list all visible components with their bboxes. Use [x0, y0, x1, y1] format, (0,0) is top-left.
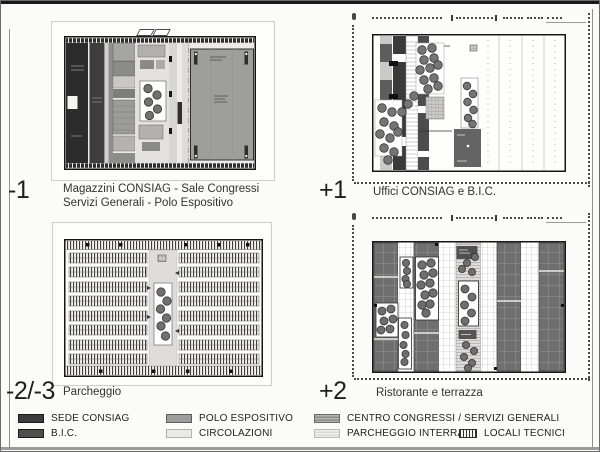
legend-label-circolazioni: CIRCOLAZIONI — [199, 428, 273, 439]
sheet-inner-right-line — [592, 9, 593, 447]
sheet-bottom-border — [1, 447, 600, 450]
floorplan-minus-1 — [64, 36, 256, 170]
scanned-plans-sheet: -1 Magazzini CONSIAG - Sale Congressi Se… — [0, 0, 600, 452]
caption-minus-2-3: Parcheggio — [63, 386, 121, 400]
legend-swatch-polo-espositivo — [166, 414, 192, 423]
canopy-tick — [451, 215, 453, 221]
canopy-dots — [352, 225, 354, 377]
canopy-underline — [546, 22, 586, 23]
canopy-dots — [372, 217, 442, 219]
canopy-dots — [352, 25, 354, 181]
legend-label-centro-congressi: CENTRO CONGRESSI / SERVIZI GENERALI — [347, 413, 559, 424]
sheet-top-border — [1, 1, 600, 4]
canopy-dots — [588, 213, 590, 381]
canopy-dots — [547, 217, 562, 219]
canopy-dots — [456, 217, 493, 219]
canopy-dots — [503, 217, 523, 219]
canopy-dots — [527, 17, 543, 19]
canopy-dots — [354, 378, 590, 380]
canopy-dots — [527, 217, 543, 219]
canopy-tick — [495, 215, 497, 221]
legend-item-parcheggio-interrato: PARCHEGGIO INTERRATO — [314, 427, 478, 439]
level-label-plus-1: +1 — [319, 177, 347, 203]
legend-label-bic: B.I.C. — [51, 428, 77, 439]
plan-card-minus-1 — [51, 21, 275, 181]
legend-item-locali-tecnici: LOCALI TECNICI — [459, 427, 565, 439]
canopy-dots — [354, 182, 590, 184]
legend-swatch-centro-congressi — [314, 414, 340, 423]
canopy-tick — [495, 15, 497, 21]
level-label-minus-1: -1 — [8, 177, 29, 203]
legend-item-sede-consiag: SEDE CONSIAG — [18, 412, 130, 424]
canopy-dots — [588, 13, 590, 187]
floorplan-plus-1 — [372, 34, 566, 172]
legend-swatch-parcheggio-interrato — [314, 429, 340, 438]
level-label-plus-2: +2 — [319, 378, 347, 404]
legend-swatch-sede-consiag — [18, 414, 44, 423]
level-label-minus-2-3: -2/-3 — [6, 378, 55, 404]
legend-item-centro-congressi: CENTRO CONGRESSI / SERVIZI GENERALI — [314, 412, 559, 424]
legend-swatch-bic — [18, 429, 44, 438]
legend-item-bic: B.I.C. — [18, 427, 77, 439]
canopy-dots — [547, 17, 562, 19]
legend-label-polo-espositivo: POLO ESPOSITIVO — [199, 413, 293, 424]
ramp-mark — [152, 29, 171, 36]
floorplan-plus-2 — [372, 241, 566, 373]
floorplan-minus-2-3 — [64, 239, 263, 377]
canopy-dots — [372, 17, 442, 19]
caption-minus-1-line2: Servizi Generali - Polo Espositivo — [63, 197, 259, 211]
canopy-corner-mark — [352, 213, 356, 220]
legend-item-circolazioni: CIRCOLAZIONI — [166, 427, 273, 439]
legend-label-locali-tecnici: LOCALI TECNICI — [484, 428, 565, 439]
caption-minus-1: Magazzini CONSIAG - Sale Congressi Servi… — [63, 183, 259, 210]
caption-minus-1-line1: Magazzini CONSIAG - Sale Congressi — [63, 183, 259, 197]
plan-card-minus-2-3 — [52, 222, 272, 386]
legend-swatch-locali-tecnici — [459, 429, 477, 438]
canopy-dots — [503, 17, 523, 19]
caption-plus-2: Ristorante e terrazza — [376, 387, 483, 401]
canopy-underline — [546, 222, 586, 223]
legend-item-polo-espositivo: POLO ESPOSITIVO — [166, 412, 293, 424]
canopy-dots — [456, 17, 493, 19]
legend-label-sede-consiag: SEDE CONSIAG — [51, 413, 130, 424]
legend-swatch-circolazioni — [166, 429, 192, 438]
canopy-corner-mark — [352, 13, 356, 20]
canopy-tick — [451, 15, 453, 21]
caption-plus-1: Uffici CONSIAG e B.I.C. — [373, 186, 496, 200]
